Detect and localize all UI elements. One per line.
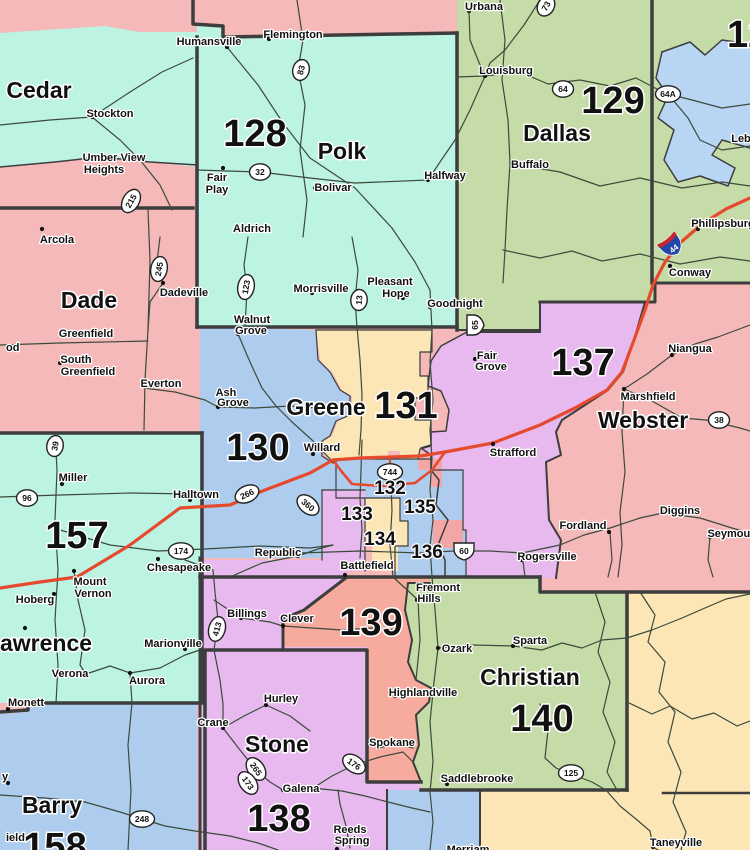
town-label: Flemington (263, 29, 323, 41)
county-label: awrence (0, 630, 92, 656)
route-shield-174: 174 (169, 543, 194, 559)
district-number-small: 133 (341, 504, 373, 525)
county-label: Cedar (6, 77, 71, 103)
town-label: Diggins (660, 505, 700, 517)
district-number: 137 (551, 342, 614, 384)
county-label: Christian (480, 664, 580, 690)
town-label: Stockton (86, 108, 133, 120)
district-number-small: 132 (374, 478, 406, 499)
town-label: South (60, 354, 91, 366)
town-label: Play (206, 184, 230, 196)
district-map-svg: 8332215736464A24512313399626636017474438… (0, 0, 750, 850)
town-dot (40, 227, 44, 231)
county-label: Greene (286, 394, 365, 420)
town-label: ield (6, 832, 25, 844)
town-label: Bolivar (314, 182, 352, 194)
town-label: Umber View (83, 152, 146, 164)
town-label: Hope (382, 288, 410, 300)
town-label: Dadeville (160, 287, 208, 299)
district-number: 138 (247, 798, 310, 840)
county-label: Polk (318, 138, 367, 164)
town-label: Billings (227, 608, 267, 620)
town-label: Spring (335, 835, 370, 847)
town-label: Vernon (74, 588, 112, 600)
town-dot (72, 569, 76, 573)
town-label: Phillipsburg (691, 218, 750, 230)
town-label: Highlandville (389, 687, 457, 699)
town-label: Crane (197, 717, 228, 729)
town-label: Heights (84, 164, 124, 176)
town-label: Battlefield (340, 560, 393, 572)
town-label: Greenfield (59, 328, 113, 340)
us-route-number: 65 (470, 320, 480, 330)
town-label: Hills (417, 593, 440, 605)
town-label: Taneyville (650, 837, 702, 849)
town-label: Niangua (668, 343, 712, 355)
district-number: 12 (727, 14, 750, 56)
county-label: Dade (61, 287, 117, 313)
route-shield-64A: 64A (656, 86, 681, 102)
county-label: Stone (245, 731, 309, 757)
town-dot (607, 530, 611, 534)
town-label: Marionville (144, 638, 201, 650)
town-label: Buffalo (511, 159, 549, 171)
town-label: Fordland (559, 520, 606, 532)
town-label: Sparta (513, 635, 548, 647)
town-label: Hoberg (16, 594, 55, 606)
town-label: Seymour (707, 528, 750, 540)
town-label: Verona (52, 668, 90, 680)
route-shield-96: 96 (17, 490, 38, 506)
town-dot (161, 281, 165, 285)
route-shield-64: 64 (553, 81, 574, 97)
town-label: Galena (283, 783, 321, 795)
town-label: Fair (207, 172, 228, 184)
route-shield-248: 248 (130, 811, 155, 827)
town-label: Aldrich (233, 223, 271, 235)
route-shield-number: 32 (255, 167, 265, 177)
town-label: Halfway (424, 170, 466, 182)
town-label: Humansville (177, 36, 242, 48)
town-label: Ozark (442, 643, 473, 655)
district-map-canvas: 8332215736464A24512313399626636017474438… (0, 0, 750, 850)
county-label: Webster (598, 407, 688, 433)
county-label: Dallas (523, 120, 591, 146)
district-number: 158 (23, 826, 86, 850)
district-number: 140 (510, 698, 573, 740)
district-number: 139 (339, 602, 402, 644)
town-label: Greenfield (61, 366, 115, 378)
route-shield-number: 96 (22, 493, 32, 503)
town-dot (221, 166, 225, 170)
district-number: 157 (45, 515, 108, 557)
town-label: Rogersville (517, 551, 576, 563)
region-merriam-blue (387, 790, 480, 850)
route-shield-38: 38 (709, 412, 730, 428)
district-number: 130 (226, 427, 289, 469)
route-shield-number: 744 (383, 467, 397, 477)
town-label: Chesapeake (147, 562, 211, 574)
town-label: Grove (217, 397, 249, 409)
town-label: Merriam (447, 844, 490, 850)
us-route-number: 60 (459, 546, 469, 556)
district-number-small: 136 (411, 542, 443, 563)
town-dot (343, 573, 347, 577)
town-dot (491, 442, 495, 446)
district-number-small: 134 (364, 529, 396, 550)
town-label: Morrisville (293, 283, 348, 295)
town-label: Willard (304, 442, 341, 454)
route-shield-number: 39 (49, 440, 61, 451)
route-shield-number: 64 (558, 84, 568, 94)
district-number: 131 (374, 385, 437, 427)
town-label: Miller (59, 472, 88, 484)
town-label: Grove (235, 325, 267, 337)
town-label: Monett (8, 697, 44, 709)
route-shield-number: 174 (174, 546, 188, 556)
town-label: y (2, 771, 9, 783)
district-number-small: 135 (404, 497, 436, 518)
town-label: Pleasant (367, 276, 413, 288)
town-label: Leb (731, 133, 750, 145)
region-polk-128-cyan (197, 26, 457, 327)
county-label: Barry (22, 792, 82, 818)
town-label: Saddlebrooke (441, 773, 514, 785)
town-label: Aurora (129, 675, 166, 687)
town-label: od (6, 342, 19, 354)
town-dot (436, 646, 440, 650)
town-label: Strafford (490, 447, 536, 459)
town-label: Louisburg (479, 65, 533, 77)
town-label: Mount (74, 576, 107, 588)
route-shield-32: 32 (250, 164, 271, 180)
town-label: Arcola (40, 234, 75, 246)
town-label: Hurley (264, 693, 299, 705)
town-label: Republic (255, 547, 301, 559)
route-shield-number: 125 (564, 768, 578, 778)
route-shield-number: 38 (714, 415, 724, 425)
town-label: Grove (475, 361, 507, 373)
town-label: Goodnight (427, 298, 483, 310)
route-shield-number: 248 (135, 814, 149, 824)
town-label: Everton (141, 378, 182, 390)
town-label: Spokane (369, 737, 415, 749)
route-shield-125: 125 (559, 765, 584, 781)
district-number: 129 (581, 80, 644, 122)
route-shield-number: 64A (660, 89, 676, 99)
route-shield-number: 13 (354, 295, 365, 306)
town-label: Urbana (465, 1, 504, 13)
town-label: Halltown (173, 489, 219, 501)
town-dot (156, 557, 160, 561)
district-number: 128 (223, 113, 286, 155)
town-label: Marshfield (620, 391, 675, 403)
town-label: Conway (669, 267, 712, 279)
town-label: Clever (280, 613, 314, 625)
